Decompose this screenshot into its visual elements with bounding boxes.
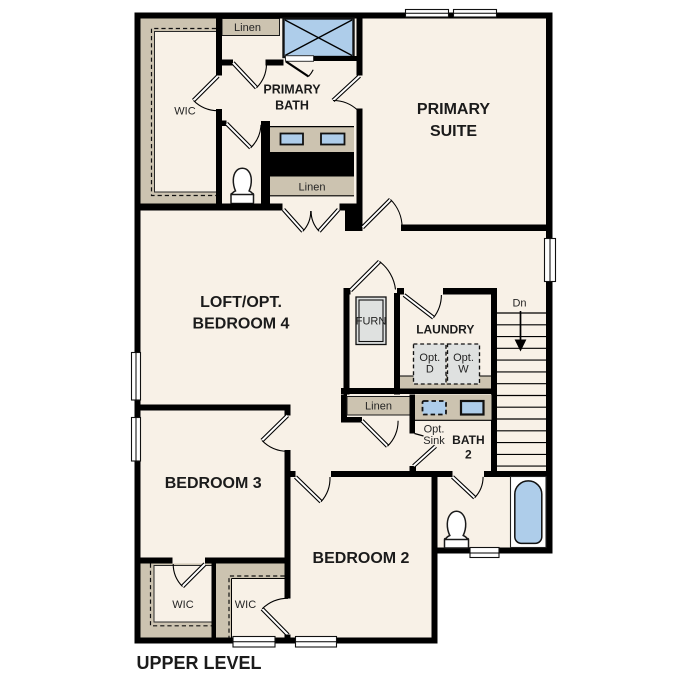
svg-text:SUITE: SUITE (430, 123, 477, 140)
svg-text:WIC: WIC (174, 106, 195, 118)
svg-text:Linen: Linen (365, 401, 392, 413)
svg-text:LAUNDRY: LAUNDRY (416, 323, 474, 337)
svg-text:WIC: WIC (235, 599, 256, 611)
svg-text:FURN: FURN (356, 316, 387, 328)
svg-text:Sink: Sink (423, 435, 445, 447)
svg-text:Linen: Linen (299, 182, 326, 194)
svg-text:UPPER LEVEL: UPPER LEVEL (137, 653, 262, 673)
svg-text:D: D (426, 364, 434, 376)
svg-text:BEDROOM 4: BEDROOM 4 (193, 316, 290, 333)
svg-text:BATH: BATH (452, 433, 484, 447)
svg-text:PRIMARY: PRIMARY (417, 101, 491, 118)
svg-text:BEDROOM 2: BEDROOM 2 (313, 550, 410, 567)
svg-text:PRIMARY: PRIMARY (263, 83, 321, 97)
svg-text:Opt.: Opt. (424, 424, 445, 436)
svg-text:Dn: Dn (512, 297, 526, 309)
svg-text:Opt.: Opt. (453, 352, 474, 364)
svg-text:BATH: BATH (275, 99, 309, 113)
svg-text:WIC: WIC (172, 599, 193, 611)
svg-text:Linen: Linen (234, 22, 261, 34)
svg-text:BEDROOM 3: BEDROOM 3 (165, 475, 262, 492)
svg-text:2: 2 (465, 448, 472, 462)
svg-text:LOFT/OPT.: LOFT/OPT. (200, 294, 282, 311)
svg-text:Opt.: Opt. (419, 352, 440, 364)
svg-text:W: W (458, 364, 469, 376)
